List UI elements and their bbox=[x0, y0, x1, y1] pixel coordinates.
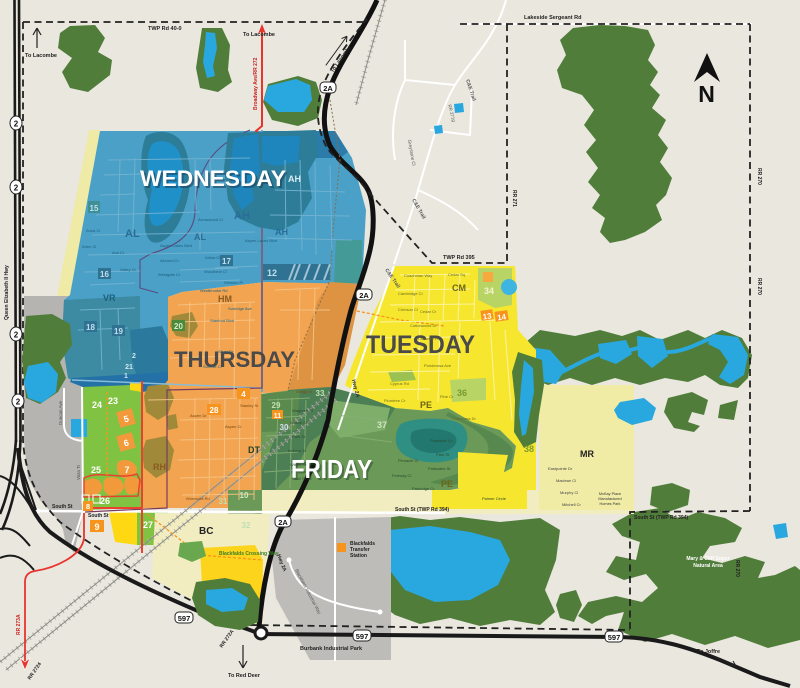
svg-text:TWP Rd 395: TWP Rd 395 bbox=[443, 255, 475, 261]
svg-text:Anna Cl: Anna Cl bbox=[86, 228, 100, 233]
svg-text:Duncan Ave: Duncan Ave bbox=[58, 400, 63, 425]
svg-text:Homes Park: Homes Park bbox=[600, 502, 621, 506]
svg-text:32: 32 bbox=[242, 521, 251, 530]
svg-text:Cottonwood Dr: Cottonwood Dr bbox=[410, 323, 437, 328]
svg-text:WEDNESDAY: WEDNESDAY bbox=[140, 166, 286, 191]
svg-text:MR: MR bbox=[580, 449, 594, 459]
svg-text:Westbrooke Rd: Westbrooke Rd bbox=[200, 288, 228, 293]
svg-text:37: 37 bbox=[377, 420, 387, 430]
svg-text:PE: PE bbox=[441, 479, 453, 489]
svg-text:Cambridge Cl: Cambridge Cl bbox=[398, 291, 423, 296]
svg-text:36: 36 bbox=[457, 388, 467, 398]
svg-text:South St: South St bbox=[88, 513, 109, 519]
svg-text:2A: 2A bbox=[359, 291, 369, 300]
svg-text:Crimson Cl: Crimson Cl bbox=[398, 307, 418, 312]
svg-text:TWP Rd 40-0: TWP Rd 40-0 bbox=[148, 26, 182, 32]
svg-text:2: 2 bbox=[14, 184, 19, 193]
svg-text:PE: PE bbox=[420, 400, 432, 410]
svg-text:Windo St: Windo St bbox=[290, 462, 307, 467]
svg-text:Woodbine Cl: Woodbine Cl bbox=[204, 269, 227, 274]
svg-text:Silver Dr: Silver Dr bbox=[218, 349, 234, 354]
svg-text:Portway Cl: Portway Cl bbox=[392, 473, 411, 478]
svg-text:Maclean Cl: Maclean Cl bbox=[556, 478, 576, 483]
svg-text:RR 270: RR 270 bbox=[734, 560, 740, 577]
svg-text:Manufactured: Manufactured bbox=[598, 497, 621, 501]
svg-text:RR 270: RR 270 bbox=[756, 168, 762, 185]
svg-text:To Lacombe: To Lacombe bbox=[243, 32, 275, 38]
svg-text:South St: South St bbox=[52, 504, 73, 510]
svg-text:Cedar Sq: Cedar Sq bbox=[448, 272, 465, 277]
svg-text:RR 271: RR 271 bbox=[511, 190, 517, 207]
svg-text:34: 34 bbox=[484, 286, 494, 296]
svg-text:1: 1 bbox=[124, 373, 128, 380]
svg-text:Arrowwood Cl: Arrowwood Cl bbox=[198, 217, 223, 222]
svg-text:Blackfalds Crossing Way: Blackfalds Crossing Way bbox=[219, 551, 279, 557]
svg-text:23: 23 bbox=[108, 396, 118, 406]
svg-text:597: 597 bbox=[608, 633, 621, 642]
svg-text:17: 17 bbox=[222, 257, 231, 266]
svg-text:Stanford Blvd: Stanford Blvd bbox=[210, 318, 234, 323]
svg-text:Aspen Dr: Aspen Dr bbox=[190, 413, 207, 418]
svg-text:Pinnacle Cl: Pinnacle Cl bbox=[398, 458, 418, 463]
svg-text:Aspen Cr: Aspen Cr bbox=[225, 424, 242, 429]
svg-text:Indiana St: Indiana St bbox=[288, 448, 307, 453]
svg-text:Stanley St: Stanley St bbox=[240, 403, 259, 408]
svg-text:AH: AH bbox=[288, 174, 301, 184]
svg-text:RH: RH bbox=[153, 462, 166, 472]
svg-text:Waghorn St: Waghorn St bbox=[292, 408, 314, 413]
svg-text:19: 19 bbox=[114, 327, 123, 336]
svg-text:Sunrise Cl: Sunrise Cl bbox=[203, 364, 222, 369]
svg-text:Aspen Lakes Blvd: Aspen Lakes Blvd bbox=[160, 243, 192, 248]
svg-text:2: 2 bbox=[132, 353, 136, 360]
svg-text:2: 2 bbox=[14, 331, 19, 340]
svg-text:Natural Area: Natural Area bbox=[693, 563, 723, 569]
svg-text:Palmer Circle: Palmer Circle bbox=[482, 496, 507, 501]
svg-text:To Lacombe: To Lacombe bbox=[25, 53, 57, 59]
svg-text:2: 2 bbox=[14, 120, 19, 129]
svg-text:25: 25 bbox=[91, 465, 101, 475]
svg-text:Almond Cr: Almond Cr bbox=[160, 258, 180, 263]
svg-text:2A: 2A bbox=[323, 84, 333, 93]
svg-text:BC: BC bbox=[199, 526, 213, 537]
svg-text:McKay Place: McKay Place bbox=[599, 492, 621, 496]
svg-text:Mitchell Cr: Mitchell Cr bbox=[562, 502, 582, 507]
svg-text:597: 597 bbox=[178, 614, 191, 623]
svg-text:30: 30 bbox=[280, 423, 289, 432]
svg-text:Palisades St: Palisades St bbox=[428, 466, 451, 471]
svg-text:Cedar Cr: Cedar Cr bbox=[420, 309, 437, 314]
svg-text:RR 270: RR 270 bbox=[756, 278, 762, 295]
svg-text:24: 24 bbox=[92, 400, 102, 410]
svg-text:Coachman Way: Coachman Way bbox=[404, 273, 432, 278]
svg-text:33: 33 bbox=[316, 389, 325, 398]
svg-text:Burbank Industrial Park: Burbank Industrial Park bbox=[300, 646, 363, 652]
svg-text:4: 4 bbox=[241, 390, 246, 399]
svg-text:South St (TWP Rd 394): South St (TWP Rd 394) bbox=[395, 507, 449, 513]
svg-text:Queen Elizabeth II Hwy: Queen Elizabeth II Hwy bbox=[4, 265, 10, 320]
svg-text:28: 28 bbox=[210, 406, 219, 415]
svg-text:15: 15 bbox=[90, 204, 99, 213]
svg-text:THURSDAY: THURSDAY bbox=[174, 347, 295, 372]
svg-text:Murphy Cl: Murphy Cl bbox=[560, 490, 578, 495]
svg-text:10: 10 bbox=[240, 491, 249, 500]
svg-text:Pine Cr: Pine Cr bbox=[440, 394, 454, 399]
svg-text:Station: Station bbox=[350, 553, 367, 559]
svg-text:AH: AH bbox=[275, 227, 288, 237]
svg-text:DT: DT bbox=[248, 445, 260, 455]
svg-text:AH: AH bbox=[234, 210, 250, 222]
svg-text:27: 27 bbox=[143, 520, 153, 530]
svg-text:26: 26 bbox=[100, 496, 110, 506]
svg-text:Park St: Park St bbox=[292, 434, 306, 439]
svg-text:Ava Cr: Ava Cr bbox=[112, 250, 125, 255]
svg-text:Arlen Cl: Arlen Cl bbox=[82, 244, 96, 249]
svg-text:2A: 2A bbox=[278, 518, 288, 527]
svg-text:Aspen Lakes Blvd: Aspen Lakes Blvd bbox=[245, 238, 277, 243]
svg-text:Broadway Ave/RR 272: Broadway Ave/RR 272 bbox=[253, 57, 259, 110]
svg-text:13: 13 bbox=[482, 311, 493, 321]
svg-text:16: 16 bbox=[100, 270, 109, 279]
svg-text:N: N bbox=[698, 81, 715, 107]
svg-text:Cyprus Rd: Cyprus Rd bbox=[390, 381, 409, 386]
svg-text:29: 29 bbox=[272, 401, 281, 410]
svg-text:Valley Cr: Valley Cr bbox=[120, 267, 137, 272]
svg-text:Parkridge Cr: Parkridge Cr bbox=[412, 486, 435, 491]
svg-text:Gregg St: Gregg St bbox=[296, 389, 313, 394]
svg-text:VR: VR bbox=[103, 293, 116, 303]
svg-text:South St (TWP Rd 394): South St (TWP Rd 394) bbox=[634, 515, 688, 521]
svg-text:12: 12 bbox=[267, 268, 277, 278]
svg-text:AL: AL bbox=[194, 232, 206, 242]
svg-text:9: 9 bbox=[94, 522, 99, 532]
svg-text:Winston Pl: Winston Pl bbox=[224, 280, 243, 285]
svg-text:7: 7 bbox=[124, 465, 129, 475]
svg-text:597: 597 bbox=[356, 632, 369, 641]
svg-text:Shull St: Shull St bbox=[292, 476, 307, 481]
svg-text:To Red Deer: To Red Deer bbox=[228, 673, 261, 679]
svg-text:14: 14 bbox=[497, 312, 508, 322]
svg-text:RR 273A: RR 273A bbox=[16, 614, 22, 635]
svg-text:Plumtree Cr: Plumtree Cr bbox=[384, 398, 406, 403]
svg-text:20: 20 bbox=[174, 322, 183, 331]
svg-text:2: 2 bbox=[16, 398, 21, 407]
svg-text:Westgate Cr: Westgate Cr bbox=[158, 272, 181, 277]
svg-text:CM: CM bbox=[452, 283, 466, 293]
svg-text:8: 8 bbox=[86, 502, 90, 511]
svg-text:Adina Cl: Adina Cl bbox=[205, 255, 220, 260]
svg-text:11: 11 bbox=[274, 413, 282, 420]
svg-text:Mary & Cliff Soper: Mary & Cliff Soper bbox=[686, 556, 729, 562]
svg-text:Wilson St: Wilson St bbox=[290, 420, 308, 425]
svg-text:Womacks Rd: Womacks Rd bbox=[186, 496, 210, 501]
svg-text:31: 31 bbox=[219, 497, 228, 506]
svg-text:Eastpointe Dr: Eastpointe Dr bbox=[548, 466, 573, 471]
svg-text:Pondside Cr: Pondside Cr bbox=[430, 438, 453, 443]
svg-text:To Joffre: To Joffre bbox=[697, 649, 720, 655]
svg-text:Panorama Dr: Panorama Dr bbox=[452, 416, 476, 421]
svg-text:21: 21 bbox=[125, 364, 133, 371]
svg-text:18: 18 bbox=[86, 323, 95, 332]
svg-text:HM: HM bbox=[218, 294, 232, 304]
svg-text:Park St: Park St bbox=[436, 452, 450, 457]
svg-text:AL: AL bbox=[125, 228, 140, 240]
svg-text:Churchill Pl: Churchill Pl bbox=[418, 336, 438, 341]
svg-text:38: 38 bbox=[524, 444, 534, 454]
svg-text:Sunridge Ave: Sunridge Ave bbox=[228, 306, 252, 311]
svg-text:Lakeside Sergeant Rd: Lakeside Sergeant Rd bbox=[524, 15, 581, 21]
svg-text:Ponderosa Ave: Ponderosa Ave bbox=[424, 363, 452, 368]
svg-text:Vista Tr: Vista Tr bbox=[76, 464, 81, 480]
